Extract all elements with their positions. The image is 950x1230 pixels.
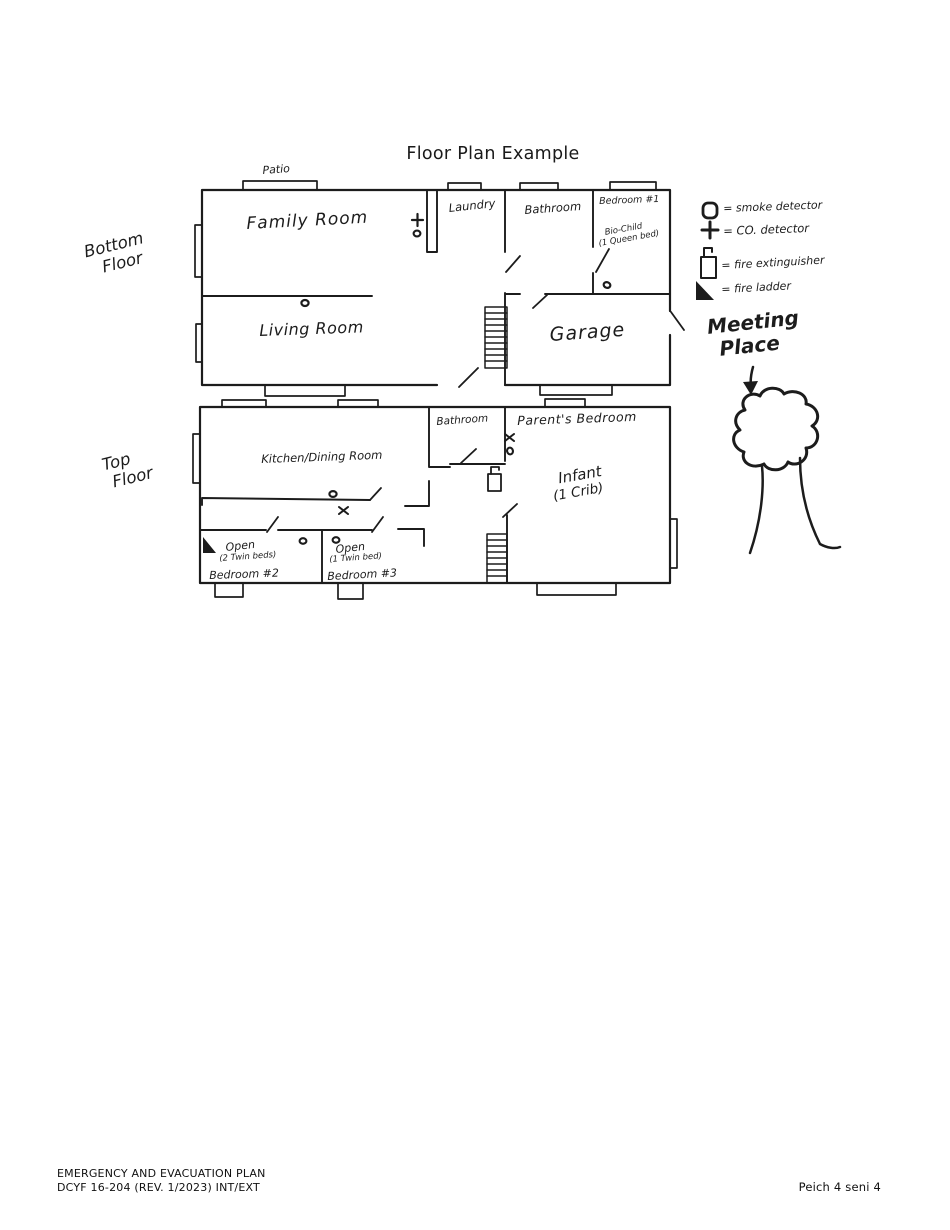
patio-label: Patio — [262, 162, 290, 177]
smoke-detector-icon — [703, 203, 717, 218]
smoke-detector-icon — [329, 491, 336, 497]
document-page: Floor Plan Example Bottom Floor Top Floo… — [0, 0, 950, 1230]
co-detector-icon — [412, 214, 423, 226]
smoke-detector-icon — [414, 231, 421, 237]
meeting-place-label: Meeting Place — [706, 306, 802, 361]
bedroom2-name-label: Bedroom #2 — [209, 567, 279, 582]
footer-doc-title: EMERGENCY AND EVACUATION PLAN — [57, 1167, 266, 1181]
smoke-detector-icon — [300, 538, 307, 544]
smoke-detector-icon — [603, 281, 611, 289]
tree-trunk — [750, 458, 840, 553]
smoke-detector-icon — [506, 447, 513, 455]
fire-ladder-icon — [696, 281, 714, 300]
footer-page-number: Peich 4 seni 4 — [776, 1180, 881, 1194]
bottom-floor-stairs-icon — [485, 307, 507, 368]
fire-ladder-icon — [203, 537, 216, 553]
fire-extinguisher-icon — [488, 467, 501, 491]
footer-doc-number: DCYF 16-204 (REV. 1/2023) INT/EXT — [57, 1181, 260, 1195]
co-detector-icon — [339, 507, 348, 514]
top-floor-stairs-icon — [487, 534, 507, 583]
floor-plan-drawing — [0, 0, 950, 1230]
co-detector-icon — [505, 434, 514, 441]
legend-symbols — [696, 203, 718, 300]
co-detector-icon — [702, 222, 718, 238]
bottom-floor-door-leaves — [459, 249, 684, 387]
meeting-place-drawing — [734, 367, 840, 553]
living-room-label: Living Room — [259, 317, 364, 340]
smoke-detector-icon — [301, 300, 308, 306]
page-title: Floor Plan Example — [348, 144, 638, 164]
bedroom1-label: Bedroom #1 — [599, 194, 660, 207]
tree-canopy — [734, 388, 818, 470]
legend-co-detector-label: = CO. detector — [723, 221, 809, 238]
fire-extinguisher-icon — [701, 248, 716, 278]
